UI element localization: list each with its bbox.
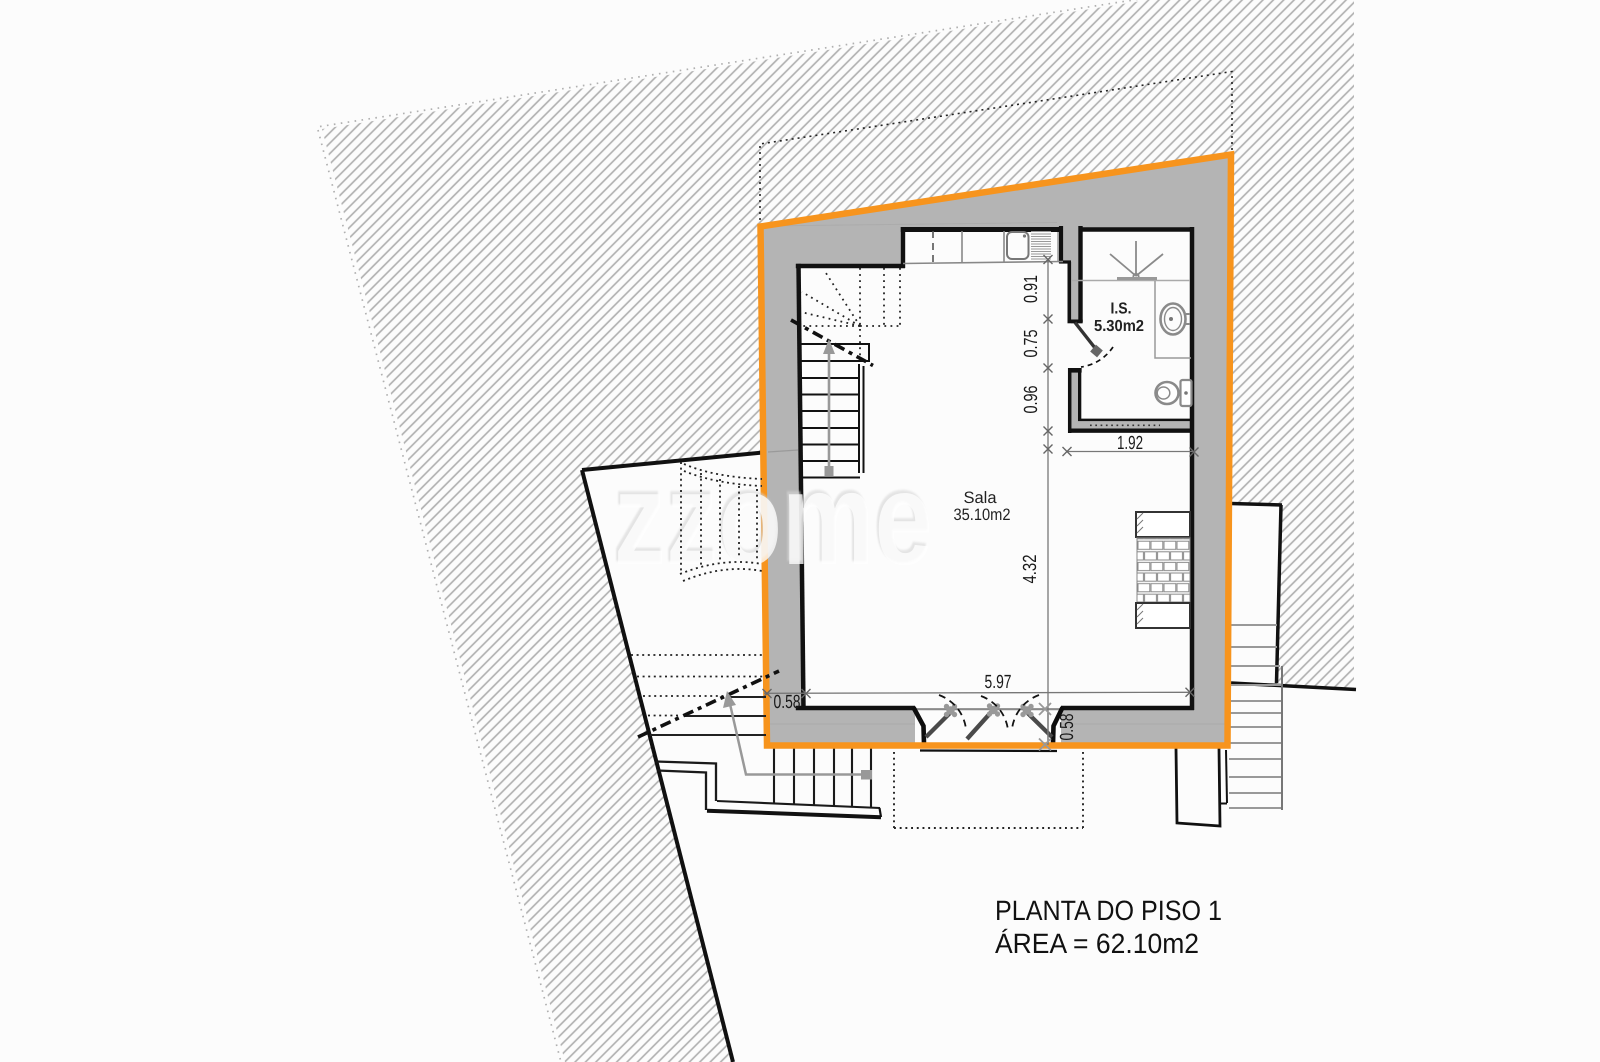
svg-text:PLANTA DO PISO 1: PLANTA DO PISO 1: [995, 895, 1222, 926]
svg-text:5.97: 5.97: [985, 672, 1012, 693]
svg-text:1.92: 1.92: [1117, 433, 1143, 454]
svg-text:zzome: zzome: [614, 445, 933, 592]
svg-text:0.96: 0.96: [1021, 386, 1042, 414]
svg-text:0.58: 0.58: [1057, 714, 1078, 741]
svg-text:Sala: Sala: [963, 489, 997, 507]
svg-text:0.91: 0.91: [1021, 275, 1042, 303]
svg-text:0.75: 0.75: [1021, 330, 1042, 358]
svg-text:4.32: 4.32: [1020, 555, 1041, 584]
svg-text:0.58: 0.58: [774, 692, 801, 713]
svg-text:5.30m2: 5.30m2: [1094, 318, 1144, 335]
svg-text:I.S.: I.S.: [1111, 301, 1132, 318]
svg-text:35.10m2: 35.10m2: [954, 506, 1011, 524]
svg-text:ÁREA = 62.10m2: ÁREA = 62.10m2: [995, 928, 1199, 959]
